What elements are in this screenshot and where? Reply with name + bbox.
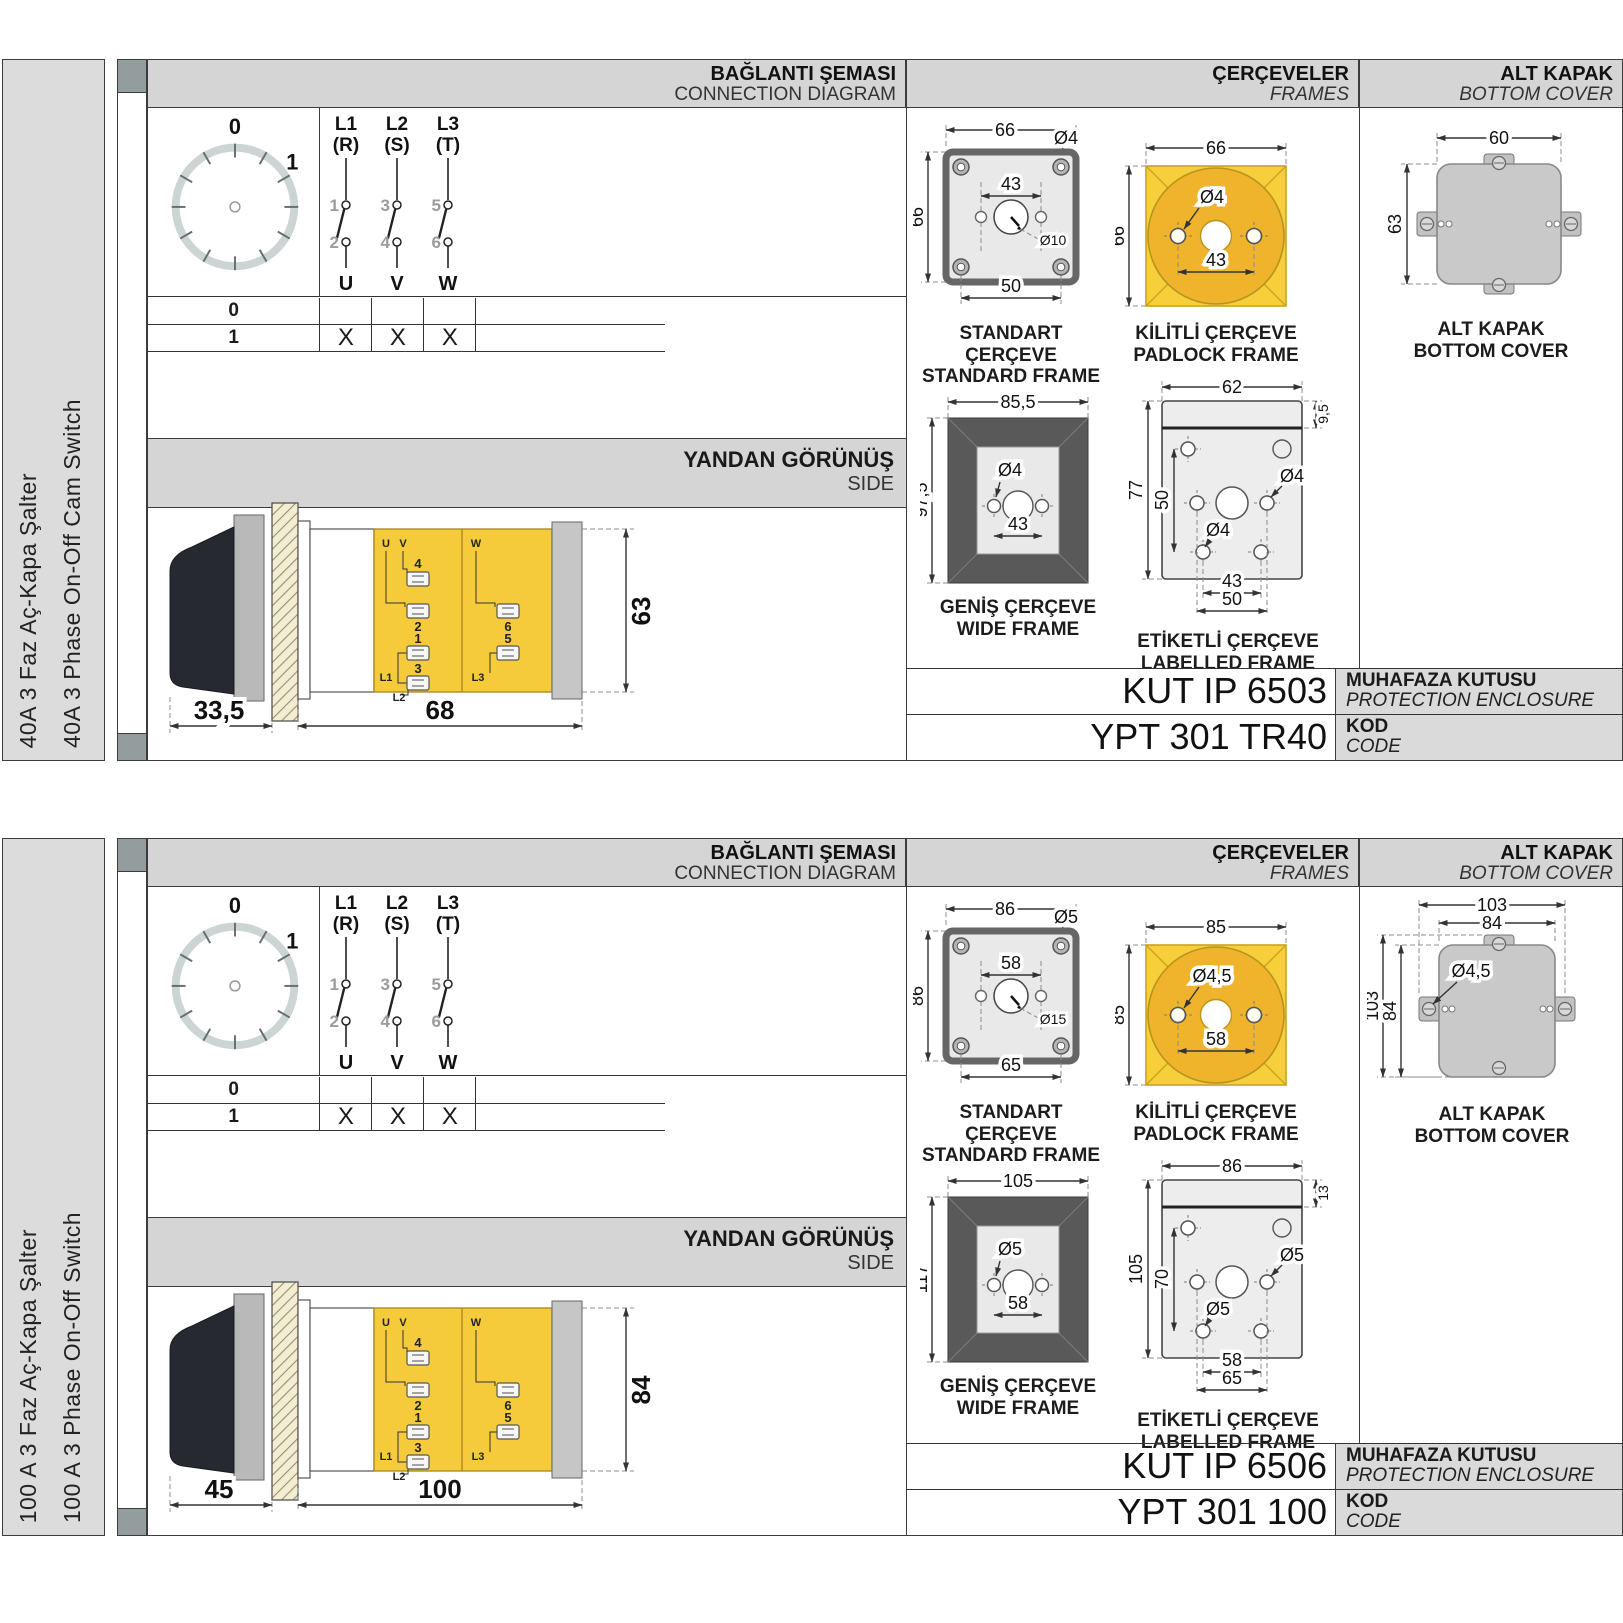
dimension-strip: 9,5 <box>1315 404 1331 424</box>
output-label: U <box>339 1052 353 1074</box>
dimension-height: 63 <box>1385 214 1405 234</box>
header-en: FRAMES <box>906 85 1349 105</box>
phase-l2: L2 (S) 3 4 V <box>381 893 410 1074</box>
wide-frame-drawing: 105 117 Ø5 58 <box>920 1167 1116 1369</box>
product-title-tr: 40A 3 Faz Aç-Kapa Şalter <box>15 473 42 748</box>
labelled-frame-drawing: 62 9,5 <box>1120 376 1336 624</box>
phase-l3: L3 (T) 5 6 W <box>432 893 461 1074</box>
dimension-width: 66 <box>995 120 1015 140</box>
caption-en: STANDARD FRAME <box>912 1145 1110 1167</box>
dimension-hole: Ø5 <box>1054 907 1078 927</box>
frame-caption: KİLİTLİ ÇERÇEVE PADLOCK FRAME <box>1114 323 1318 366</box>
terminal-label: U <box>382 538 390 550</box>
dimension-hole: Ø4,5 <box>1451 961 1490 981</box>
caption-tr: GENİŞ ÇERÇEVE <box>920 1376 1116 1398</box>
caption-tr: ALT KAPAK <box>1370 319 1612 341</box>
strip-square-bottom <box>118 733 146 760</box>
dial-position-0: 0 <box>229 893 241 918</box>
output-label: U <box>339 273 353 295</box>
phase-sublabel: (T) <box>436 914 460 935</box>
label-en: CODE <box>1346 1512 1622 1532</box>
dimension-hole: Ø4 <box>998 460 1022 480</box>
labelled-frame-drawing: 86 13 <box>1120 1155 1336 1403</box>
dimension-span: 58 <box>1206 1029 1226 1049</box>
terminal-number: 5 <box>504 631 511 646</box>
wide-frame: 105 117 Ø5 58 <box>920 1167 1116 1419</box>
dimension-hole: Ø4 <box>1206 520 1230 540</box>
dimension-depth: 100 <box>418 1474 461 1504</box>
dial-position-1: 1 <box>286 928 298 953</box>
column-divider-b <box>1359 60 1360 668</box>
terminal-number: 2 <box>330 1012 339 1031</box>
dimension-width: 85 <box>1206 917 1226 937</box>
column-divider-b <box>1359 839 1360 1443</box>
header-bottom-cover: ALT KAPAK BOTTOM COVER <box>1359 60 1622 108</box>
empty-cell <box>476 1104 665 1130</box>
caption-tr: ETİKETLİ ÇERÇEVE <box>1120 631 1336 653</box>
dimension-hole: Ø5 <box>1206 1299 1230 1319</box>
terminal-label: L1 <box>380 672 393 684</box>
cover-caption: ALT KAPAK BOTTOM COVER <box>1370 319 1612 362</box>
terminal-label: L2 <box>393 692 406 704</box>
header-en: CONNECTION DIAGRAM <box>148 864 896 884</box>
caption-tr: STANDART ÇERÇEVE <box>912 323 1110 366</box>
caption-en: WIDE FRAME <box>920 619 1116 641</box>
contact-cell: X <box>424 1104 476 1130</box>
cover-caption: ALT KAPAK BOTTOM COVER <box>1366 1104 1618 1147</box>
wide-frame-drawing: 85,5 97,5 Ø4 43 <box>920 388 1116 590</box>
dimension-handle: 45 <box>205 1474 234 1504</box>
phase-sublabel: (T) <box>436 135 460 156</box>
frame-caption: STANDART ÇERÇEVE STANDARD FRAME <box>912 323 1110 388</box>
terminal-label: L3 <box>472 672 485 684</box>
terminal-number: 3 <box>381 196 390 215</box>
header-connection-diagram: BAĞLANTI ŞEMASI CONNECTION DIAGRAM <box>148 60 906 108</box>
switch-position-table: 0 1 X X X <box>148 1077 665 1131</box>
dimension-center-hole: Ø10 <box>1040 232 1067 248</box>
dimension-width: 62 <box>1222 377 1242 397</box>
dial-position-0: 0 <box>229 114 241 139</box>
code-label: KOD CODE <box>1335 715 1622 760</box>
position-cell: 0 <box>148 1077 320 1103</box>
output-label: W <box>439 1052 458 1074</box>
strip-square-top <box>118 60 146 93</box>
dimension-span: 43 <box>1001 174 1021 194</box>
terminal-number: 4 <box>381 1012 391 1031</box>
enclosure-code: KUT IP 6506 <box>906 1444 1335 1489</box>
bottom-cover-drawing: 60 63 <box>1371 122 1611 312</box>
dimension-height: 86 <box>913 986 927 1006</box>
terminal-number: 4 <box>414 556 422 571</box>
dimension-depth: 68 <box>426 695 455 725</box>
dimension-hole: Ø4 <box>1200 187 1224 207</box>
header-en: CONNECTION DIAGRAM <box>148 85 896 105</box>
standard-frame-drawing: 86 Ø5 86 58 <box>913 895 1109 1095</box>
dimension-span: 65 <box>1222 1368 1242 1388</box>
contact-cell <box>320 1077 372 1103</box>
contact-cell: X <box>372 1104 424 1130</box>
dimension-height: 63 <box>626 597 656 626</box>
dial-box: 0 1 <box>148 887 320 1075</box>
product-code-row: YPT 301 TR40 KOD CODE <box>906 714 1622 760</box>
dimension-height: 105 <box>1126 1254 1146 1284</box>
product-code: YPT 301 100 <box>906 1490 1335 1535</box>
contact-cell <box>424 1077 476 1103</box>
phase-l1: L1 (R) 1 2 U <box>330 114 360 295</box>
product-title-en: 40A 3 Phase On-Off Cam Switch <box>59 399 86 748</box>
position-cell: 1 <box>148 1104 320 1130</box>
phase-l2: L2 (S) 3 4 V <box>381 114 410 295</box>
phase-label: L2 <box>386 114 408 135</box>
table-row: 1 X X X <box>148 324 665 351</box>
contact-cell: X <box>372 325 424 351</box>
phase-sublabel: (R) <box>333 914 359 935</box>
product-code-row: YPT 301 100 KOD CODE <box>906 1489 1622 1535</box>
dimension-height: 66 <box>913 207 927 227</box>
caption-tr: GENİŞ ÇERÇEVE <box>920 597 1116 619</box>
product-section-40a: 40A 3 Faz Aç-Kapa Şalter 40A 3 Phase On-… <box>0 59 1623 761</box>
switch-position-table: 0 1 X X X <box>148 298 665 352</box>
dimension-span: 58 <box>1222 1350 1242 1370</box>
product-sidebar: 100 A 3 Faz Aç-Kapa Şalter 100 A 3 Phase… <box>2 838 105 1536</box>
terminal-number: 5 <box>432 196 441 215</box>
padlock-frame: 85 85 Ø4,5 58 <box>1114 895 1318 1145</box>
header-tr: ÇERÇEVELER <box>906 842 1349 864</box>
frame-caption: GENİŞ ÇERÇEVE WIDE FRAME <box>920 597 1116 640</box>
dimension-handle: 33,5 <box>194 695 245 725</box>
terminal-number: 4 <box>381 233 391 252</box>
dimension-hole: Ø5 <box>998 1239 1022 1259</box>
header-frames: ÇERÇEVELER FRAMES <box>906 839 1359 887</box>
dimension-hole: Ø4,5 <box>1192 966 1231 986</box>
header-frames: ÇERÇEVELER FRAMES <box>906 60 1359 108</box>
bottom-cover-drawing: 103 84 103 84 <box>1367 893 1617 1097</box>
labelled-frame: 62 9,5 <box>1120 376 1336 674</box>
header-tr: ÇERÇEVELER <box>906 63 1349 85</box>
contact-cell <box>424 298 476 324</box>
dimension-inner-height: 50 <box>1152 490 1172 510</box>
enclosure-code: KUT IP 6503 <box>906 669 1335 714</box>
dial-box: 0 1 <box>148 108 320 296</box>
terminal-label: L1 <box>380 1451 393 1463</box>
enclosure-code-row: KUT IP 6506 MUHAFAZA KUTUSU PROTECTION E… <box>906 1443 1622 1489</box>
header-tr: BAĞLANTI ŞEMASI <box>148 63 896 85</box>
terminal-number: 2 <box>330 233 339 252</box>
caption-en: WIDE FRAME <box>920 1398 1116 1420</box>
dimension-height: 85 <box>1115 1005 1128 1025</box>
dimension-hole: Ø5 <box>1280 1245 1304 1265</box>
phase-l1: L1 (R) 1 2 U <box>330 893 360 1074</box>
header-bottom-cover: ALT KAPAK BOTTOM COVER <box>1359 839 1622 887</box>
output-label: V <box>390 273 404 295</box>
empty-cell <box>476 298 665 324</box>
terminal-number: 3 <box>414 1440 421 1455</box>
contact-cell: X <box>320 325 372 351</box>
terminal-number: 5 <box>504 1410 511 1425</box>
enclosure-label: MUHAFAZA KUTUSU PROTECTION ENCLOSURE <box>1335 669 1622 714</box>
header-connection-diagram: BAĞLANTI ŞEMASI CONNECTION DIAGRAM <box>148 839 906 887</box>
padlock-frame-drawing: 85 85 Ø4,5 58 <box>1115 895 1317 1095</box>
dimension-width: 66 <box>1206 138 1226 158</box>
side-view-drawing: U V W 4 2 1 3 6 5 L1 L2 L3 63 33,5 <box>156 495 721 743</box>
binding-strip <box>117 59 147 761</box>
dimension-bottom: 65 <box>1001 1055 1021 1075</box>
dimension-width-inner: 84 <box>1482 913 1502 933</box>
caption-en: STANDARD FRAME <box>912 366 1110 388</box>
caption-tr: KİLİTLİ ÇERÇEVE <box>1114 1102 1318 1124</box>
table-row: 0 <box>148 298 665 324</box>
terminal-number: 3 <box>414 661 421 676</box>
dimension-span: 43 <box>1008 514 1028 534</box>
header-tr: ALT KAPAK <box>1359 63 1613 85</box>
label-tr: MUHAFAZA KUTUSU <box>1346 1445 1622 1466</box>
product-title-en: 100 A 3 Phase On-Off Switch <box>59 1212 86 1523</box>
phase-label: L3 <box>437 893 459 914</box>
phase-label: L3 <box>437 114 459 135</box>
dimension-strip: 13 <box>1315 1185 1331 1201</box>
terminal-number: 1 <box>330 196 339 215</box>
terminal-label: L2 <box>393 1471 406 1483</box>
side-view-title-tr: YANDAN GÖRÜNÜŞ <box>148 447 894 473</box>
enclosure-label: MUHAFAZA KUTUSU PROTECTION ENCLOSURE <box>1335 1444 1622 1489</box>
side-view-title-en: SIDE <box>148 473 894 495</box>
bottom-cover: 60 63 ALT KAPAK BOTTOM COVER <box>1370 122 1612 362</box>
phase-label: L1 <box>335 893 358 914</box>
enclosure-code-row: KUT IP 6503 MUHAFAZA KUTUSU PROTECTION E… <box>906 668 1622 714</box>
terminal-label: W <box>471 538 482 550</box>
frame-caption: GENİŞ ÇERÇEVE WIDE FRAME <box>920 1376 1116 1419</box>
strip-square-top <box>118 839 146 872</box>
contact-cell <box>372 298 424 324</box>
dimension-height: 117 <box>920 1265 931 1294</box>
standard-frame: 66 Ø4 66 43 <box>912 116 1110 388</box>
switch-schematic-box: L1 (R) 1 2 U L2 (S) 3 <box>320 887 740 1075</box>
section-content: BAĞLANTI ŞEMASI CONNECTION DIAGRAM ÇERÇE… <box>147 59 1623 761</box>
label-tr: KOD <box>1346 1491 1622 1512</box>
column-divider-a <box>906 839 907 1535</box>
switch-schematic-box: L1 (R) 1 2 U L2 (S) 3 <box>320 108 740 296</box>
contact-cell: X <box>320 1104 372 1130</box>
side-view-drawing: U V W 4 2 1 3 6 5 L1 L2 L3 84 45 <box>156 1274 721 1522</box>
dimension-bottom: 50 <box>1001 276 1021 296</box>
dimension-width: 85,5 <box>1000 392 1035 412</box>
dimension-width: 86 <box>1222 1156 1242 1176</box>
empty-cell <box>476 325 665 351</box>
dimension-height: 77 <box>1126 480 1146 500</box>
column-divider-a <box>906 60 907 760</box>
binding-strip <box>117 838 147 1536</box>
caption-tr: ETİKETLİ ÇERÇEVE <box>1120 1410 1336 1432</box>
phase-l3: L3 (T) 5 6 W <box>432 114 461 295</box>
dimension-height: 97,5 <box>920 482 931 517</box>
padlock-frame-drawing: 66 66 Ø4 43 <box>1115 116 1317 316</box>
table-row: 1 X X X <box>148 1103 665 1130</box>
label-tr: KOD <box>1346 716 1622 737</box>
standard-frame-drawing: 66 Ø4 66 43 <box>913 116 1109 316</box>
phase-sublabel: (S) <box>384 914 409 935</box>
wide-frame: 85,5 97,5 Ø4 43 <box>920 388 1116 640</box>
dimension-width: 86 <box>995 899 1015 919</box>
switch-dial-drawing: 0 1 <box>148 108 318 294</box>
empty-cell <box>476 1077 665 1103</box>
bottom-cover: 103 84 103 84 <box>1366 893 1618 1147</box>
label-en: PROTECTION ENCLOSURE <box>1346 691 1622 711</box>
dimension-height: 66 <box>1115 226 1128 246</box>
contact-cell <box>320 298 372 324</box>
terminal-number: 5 <box>432 975 441 994</box>
frame-caption: STANDART ÇERÇEVE STANDARD FRAME <box>912 1102 1110 1167</box>
standard-frame: 86 Ø5 86 58 <box>912 895 1110 1167</box>
dimension-span: 43 <box>1206 250 1226 270</box>
header-tr: ALT KAPAK <box>1359 842 1613 864</box>
frame-caption: KİLİTLİ ÇERÇEVE PADLOCK FRAME <box>1114 1102 1318 1145</box>
terminal-number: 3 <box>381 975 390 994</box>
labelled-frame: 86 13 <box>1120 1155 1336 1453</box>
terminal-number: 1 <box>414 1410 421 1425</box>
caption-tr: KİLİTLİ ÇERÇEVE <box>1114 323 1318 345</box>
dial-position-1: 1 <box>286 149 298 174</box>
output-label: W <box>439 273 458 295</box>
contact-cell: X <box>424 325 476 351</box>
phase-sublabel: (R) <box>333 135 359 156</box>
phase-sublabel: (S) <box>384 135 409 156</box>
product-sidebar: 40A 3 Faz Aç-Kapa Şalter 40A 3 Phase On-… <box>2 59 105 761</box>
dimension-inner-height: 70 <box>1152 1269 1172 1289</box>
label-tr: MUHAFAZA KUTUSU <box>1346 670 1622 691</box>
dimension-center-hole: Ø15 <box>1040 1011 1067 1027</box>
phase-label: L2 <box>386 893 408 914</box>
code-label: KOD CODE <box>1335 1490 1622 1535</box>
contact-cell <box>372 1077 424 1103</box>
terminal-label: V <box>399 538 407 550</box>
product-title-tr: 100 A 3 Faz Aç-Kapa Şalter <box>15 1229 42 1523</box>
strip-square-bottom <box>118 1508 146 1535</box>
terminal-label: W <box>471 1317 482 1329</box>
product-section-100a: 100 A 3 Faz Aç-Kapa Şalter 100 A 3 Phase… <box>0 838 1623 1536</box>
dimension-hole: Ø4 <box>1280 466 1304 486</box>
caption-en: BOTTOM COVER <box>1370 341 1612 363</box>
dimension-hole: Ø4 <box>1054 128 1078 148</box>
dimension-width: 60 <box>1489 128 1509 148</box>
side-view-title-tr: YANDAN GÖRÜNÜŞ <box>148 1226 894 1252</box>
label-en: CODE <box>1346 737 1622 757</box>
output-label: V <box>390 1052 404 1074</box>
section-content: BAĞLANTI ŞEMASI CONNECTION DIAGRAM ÇERÇE… <box>147 838 1623 1536</box>
terminal-number: 1 <box>330 975 339 994</box>
label-en: PROTECTION ENCLOSURE <box>1346 1466 1622 1486</box>
dimension-height-inner: 84 <box>1380 1001 1400 1021</box>
caption-en: BOTTOM COVER <box>1366 1126 1618 1148</box>
caption-tr: STANDART ÇERÇEVE <box>912 1102 1110 1145</box>
terminal-number: 1 <box>414 631 421 646</box>
header-en: FRAMES <box>906 864 1349 884</box>
position-cell: 0 <box>148 298 320 324</box>
dimension-span: 43 <box>1222 571 1242 591</box>
phase-label: L1 <box>335 114 358 135</box>
terminal-label: U <box>382 1317 390 1329</box>
dimension-span: 58 <box>1001 953 1021 973</box>
header-en: BOTTOM COVER <box>1359 864 1613 884</box>
caption-en: PADLOCK FRAME <box>1114 345 1318 367</box>
switch-dial-drawing: 0 1 <box>148 887 318 1073</box>
header-en: BOTTOM COVER <box>1359 85 1613 105</box>
padlock-frame: 66 66 Ø4 43 <box>1114 116 1318 366</box>
dimension-height: 84 <box>626 1375 656 1404</box>
caption-tr: ALT KAPAK <box>1366 1104 1618 1126</box>
dimension-span: 58 <box>1008 1293 1028 1313</box>
header-tr: BAĞLANTI ŞEMASI <box>148 842 896 864</box>
dimension-width: 105 <box>1003 1171 1033 1191</box>
caption-en: PADLOCK FRAME <box>1114 1124 1318 1146</box>
terminal-label: L3 <box>472 1451 485 1463</box>
terminal-number: 6 <box>432 233 441 252</box>
position-cell: 1 <box>148 325 320 351</box>
switch-schematic-drawing: L1 (R) 1 2 U L2 (S) 3 <box>320 887 740 1075</box>
dimension-span: 50 <box>1222 589 1242 609</box>
table-row: 0 <box>148 1077 665 1103</box>
terminal-label: V <box>399 1317 407 1329</box>
dimension-width-outer: 103 <box>1477 895 1507 915</box>
side-view-title-en: SIDE <box>148 1252 894 1274</box>
switch-schematic-drawing: L1 (R) 1 2 U L2 (S) 3 <box>320 108 740 296</box>
terminal-number: 4 <box>414 1335 422 1350</box>
terminal-number: 6 <box>432 1012 441 1031</box>
product-code: YPT 301 TR40 <box>906 715 1335 760</box>
